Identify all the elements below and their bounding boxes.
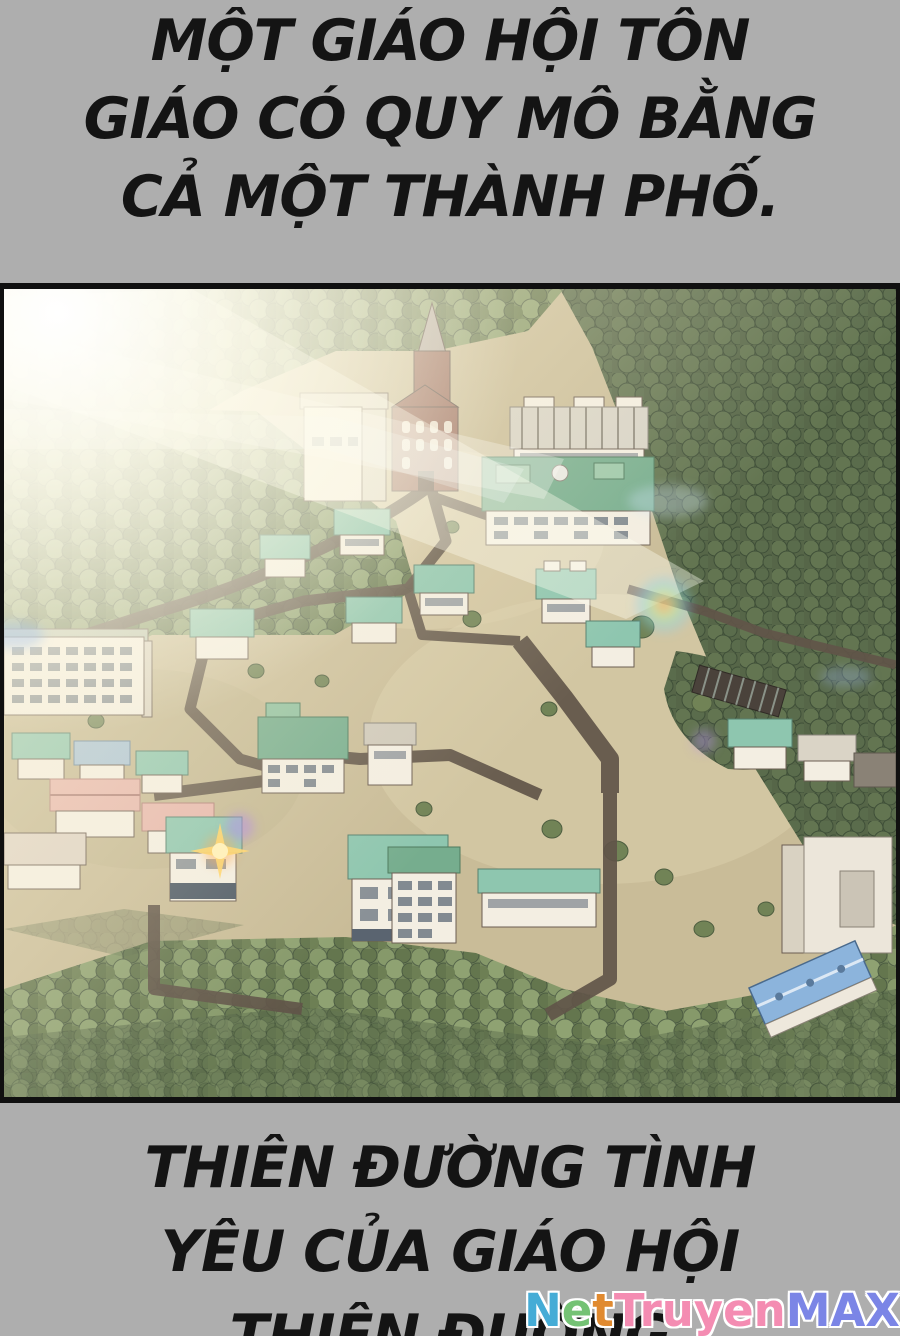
narration-bottom-line-1: THIÊN ĐƯỜNG TÌNH <box>0 1126 900 1210</box>
aerial-town-illustration <box>4 289 896 1097</box>
site-watermark: NetTruyenMAX <box>524 1284 900 1336</box>
comic-panel <box>0 283 900 1103</box>
narration-top-line-1: MỘT GIÁO HỘI TÔN <box>0 2 900 80</box>
sun-glare <box>4 289 896 1097</box>
watermark-segment-truyen: Truyen <box>614 1284 786 1336</box>
watermark-segment-net-t: t <box>592 1284 614 1336</box>
narration-top: MỘT GIÁO HỘI TÔN GIÁO CÓ QUY MÔ BẰNG CẢ … <box>0 2 900 236</box>
narration-bottom-line-2: YÊU CỦA GIÁO HỘI <box>0 1210 900 1294</box>
narration-top-line-2: GIÁO CÓ QUY MÔ BẰNG <box>0 80 900 158</box>
watermark-segment-net-n: N <box>524 1284 562 1336</box>
comic-page: MỘT GIÁO HỘI TÔN GIÁO CÓ QUY MÔ BẰNG CẢ … <box>0 0 900 1336</box>
watermark-segment-max: MAX <box>786 1284 900 1336</box>
narration-top-line-3: CẢ MỘT THÀNH PHỐ. <box>0 158 900 236</box>
rainbow-flare <box>636 577 692 633</box>
watermark-segment-net-e: e <box>562 1284 593 1336</box>
